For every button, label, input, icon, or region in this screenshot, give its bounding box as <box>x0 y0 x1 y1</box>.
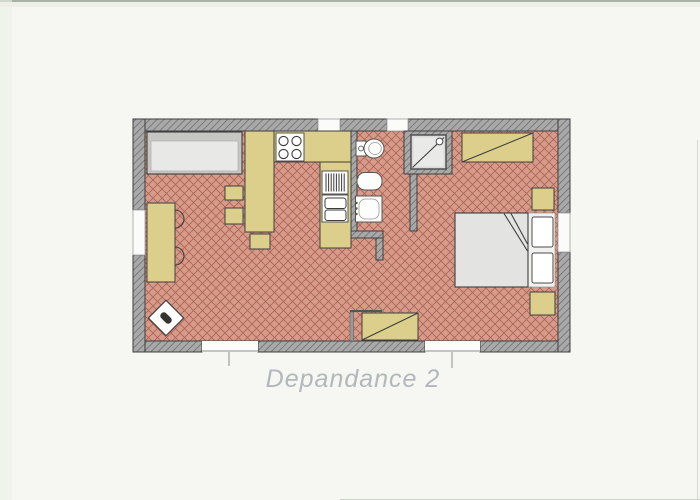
cooktop <box>276 133 304 161</box>
pillow-2 <box>532 253 553 283</box>
shelf-line <box>350 310 382 312</box>
burner-icon <box>292 136 301 145</box>
dish-rack <box>322 171 348 194</box>
hall-bedroom-wall-stub <box>410 174 417 231</box>
outer-wall-bottom-right-segment <box>480 341 570 352</box>
bidet-body <box>357 173 382 191</box>
bidet-tap-icon <box>356 184 358 186</box>
outer-wall-left-upper-segment <box>133 119 145 210</box>
wardrobe-top <box>462 133 533 162</box>
stool-2 <box>225 208 243 224</box>
washbasin <box>355 196 382 222</box>
double-sink <box>322 195 348 222</box>
burner-icon <box>292 149 301 158</box>
bathroom-door-spur <box>376 238 383 260</box>
washbasin-tap-icon <box>355 202 357 204</box>
wardrobe-hall <box>362 313 418 340</box>
window-top-1 <box>318 119 340 131</box>
sofa-bed <box>147 132 242 174</box>
washbasin-tap-icon <box>355 213 357 215</box>
outer-wall-right-upper-segment <box>558 119 570 213</box>
shower <box>404 131 452 174</box>
toilet <box>356 139 384 158</box>
kitchen-counter-left <box>245 131 274 232</box>
door-opening-right <box>425 341 480 352</box>
outer-wall-top-right-segment <box>408 119 570 131</box>
burner-icon <box>279 136 288 145</box>
bar-stool <box>250 234 270 249</box>
washbasin-counter <box>356 196 383 222</box>
outer-wall-top-mid-segment <box>340 119 387 131</box>
bidet-tap-icon <box>356 176 358 178</box>
window-left <box>133 210 145 255</box>
bathroom-wall-bottom <box>350 231 383 238</box>
scanned-floor-plan-page: Depandance 2 <box>0 0 700 500</box>
shelf-side-panel <box>350 312 354 341</box>
outer-wall-bottom-mid-segment <box>258 341 425 352</box>
pillow-1 <box>532 217 553 247</box>
toilet-flush-icon <box>359 146 364 151</box>
burner-icon <box>279 149 288 158</box>
window-top-2 <box>387 119 408 131</box>
sink-bowl-1 <box>325 198 346 209</box>
nightstand-lower <box>530 292 555 315</box>
outer-wall-right-lower-segment <box>558 252 570 352</box>
outer-wall-top-left-segment <box>133 119 318 131</box>
sofa-seat <box>151 141 238 171</box>
shower-drain-icon <box>436 138 443 145</box>
plan-title: Depandance 2 <box>266 365 441 393</box>
bidet <box>356 173 382 191</box>
double-bed <box>455 213 555 287</box>
window-right <box>558 213 570 252</box>
stool-1 <box>225 186 243 200</box>
outer-wall-left-lower-segment <box>133 255 145 352</box>
nightstand-upper <box>532 188 554 210</box>
floor-plan-drawing: Depandance 2 <box>0 0 700 500</box>
dining-table <box>147 203 175 282</box>
sink-bowl-2 <box>325 210 346 221</box>
washbasin-tap-icon <box>355 207 357 209</box>
door-opening-left <box>202 341 258 352</box>
